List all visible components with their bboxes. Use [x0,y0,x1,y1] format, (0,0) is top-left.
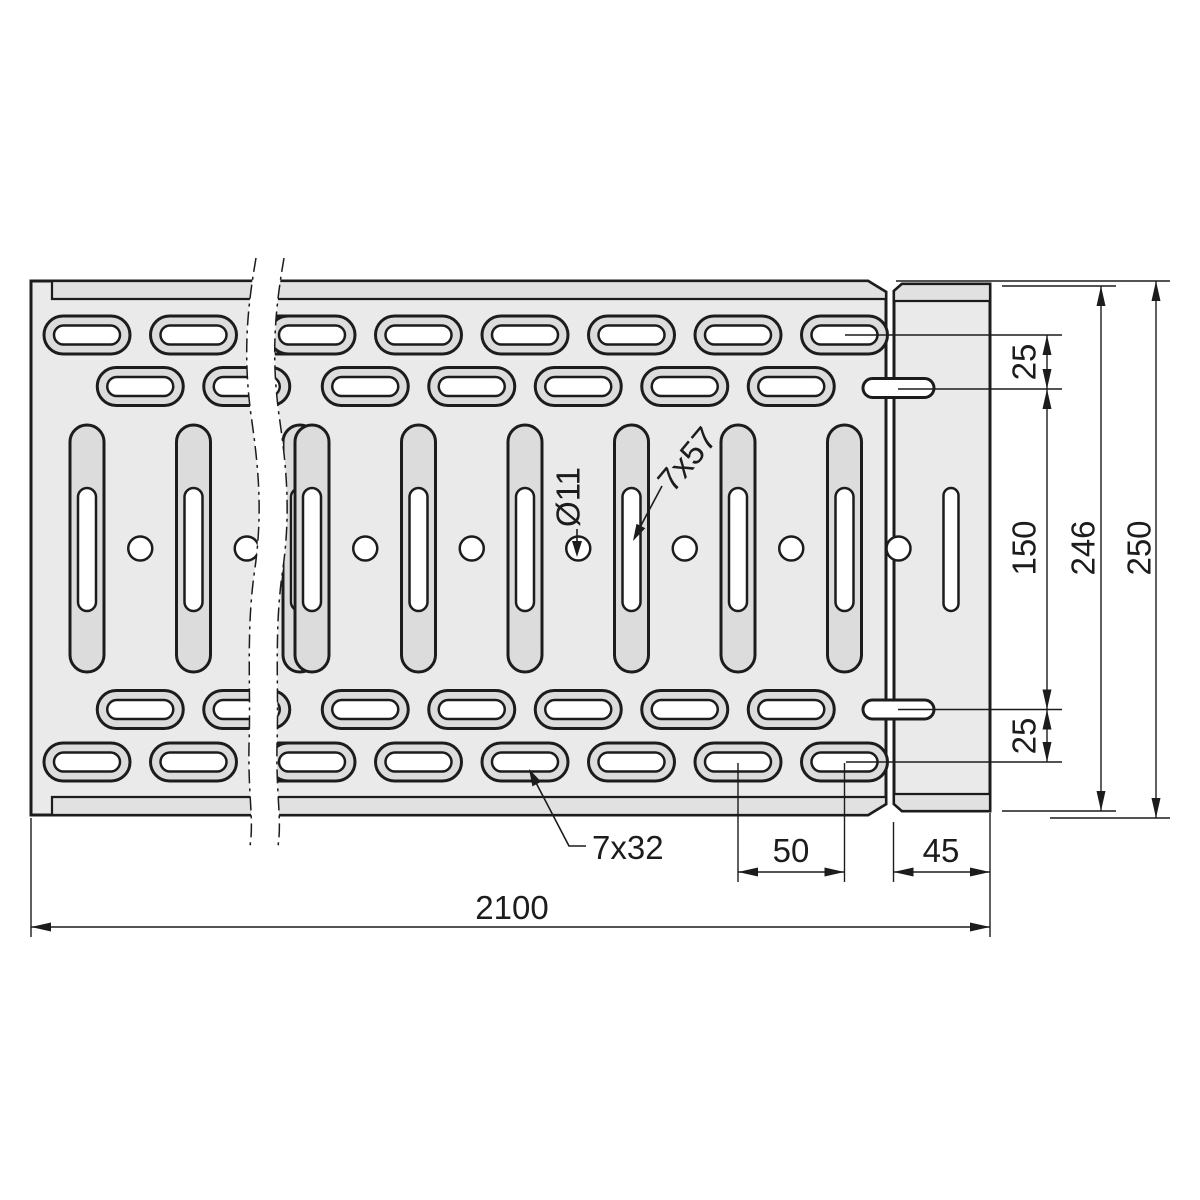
dimension-arrowhead [1043,369,1052,389]
top-row-slot-hole [492,326,558,345]
third-row-slot-hole [332,700,398,719]
bottom-row-slot-hole [279,753,345,772]
connector-flange-bottom [894,794,990,811]
dimension-arrowhead [825,868,845,877]
bottom-row-slot-hole [599,753,665,772]
dimension-arrowhead [1097,791,1106,811]
connector-flange-top [894,284,990,301]
annotation-round-hole: Ø11 [550,467,587,527]
bottom-row-slot-hole [161,753,227,772]
dimension-arrowhead [1043,335,1052,355]
tray-flange-bottom [52,797,886,815]
long-slot-hole [836,488,854,611]
dimension-arrowhead [1043,690,1052,710]
second-row-slot-hole [652,377,718,396]
dimension-arrowhead [970,923,990,932]
dim-label-hole-pitch: 50 [773,832,810,869]
top-row-slot-hole [54,326,120,345]
joint-slot [863,379,934,398]
drawing-page: 25 150 25 246 250 50 45 2100 Ø11 7x57 7x… [0,0,1200,1200]
dimension-arrowhead [1097,286,1106,306]
top-row-slot-hole [599,326,665,345]
top-row-slot-hole [386,326,452,345]
connector-long-slot-hole [944,488,959,611]
technical-drawing: 25 150 25 246 250 50 45 2100 Ø11 7x57 7x… [0,0,1200,1200]
bottom-row-slot-hole [492,753,558,772]
dim-label-row-spacing: 150 [1006,520,1043,575]
round-hole [128,537,152,561]
bottom-row-slot-hole [386,753,452,772]
dim-label-bottom-offset: 25 [1006,718,1043,755]
dimension-arrowhead [1152,281,1161,301]
round-hole [460,537,484,561]
dimension-arrowhead [1043,389,1052,409]
bottom-row-slot-hole [54,753,120,772]
top-row-slot-hole [279,326,345,345]
long-slot-hole [303,488,321,611]
dim-label-overall-height: 250 [1121,520,1158,575]
round-hole [779,537,803,561]
top-row-slot-hole [161,326,227,345]
dimension-arrowhead [1043,742,1052,762]
dimension-arrowhead [894,868,914,877]
long-slot-hole [623,488,641,611]
round-hole [235,537,259,561]
round-hole [673,537,697,561]
dim-label-top-offset: 25 [1006,344,1043,381]
long-slot-hole [729,488,747,611]
dimension-arrowhead [738,868,758,877]
second-row-slot-hole [107,377,173,396]
tray-flange-top [52,281,886,299]
long-slot-hole [410,488,428,611]
round-hole [353,537,377,561]
third-row-slot-hole [107,700,173,719]
dimension-arrowhead [1043,710,1052,730]
second-row-slot-hole [758,377,824,396]
second-row-slot-hole [332,377,398,396]
third-row-slot-hole [545,700,611,719]
third-row-slot-hole [439,700,505,719]
dimension-arrowhead [970,868,990,877]
dim-label-connector-height: 246 [1065,520,1102,575]
long-slot-hole [185,488,203,611]
third-row-slot-hole [758,700,824,719]
round-hole [887,537,911,561]
tray-outline [31,281,886,815]
annotation-short-slot: 7x32 [592,829,664,866]
second-row-slot-hole [439,377,505,396]
long-slot-hole [516,488,534,611]
dim-label-connector-length: 45 [923,832,960,869]
dimension-arrowhead [1152,798,1161,818]
second-row-slot-hole [545,377,611,396]
top-row-slot-hole [705,326,771,345]
third-row-slot-hole [652,700,718,719]
dim-label-total-length: 2100 [475,889,548,926]
long-slot-hole [78,488,96,611]
dimension-arrowhead [31,923,51,932]
